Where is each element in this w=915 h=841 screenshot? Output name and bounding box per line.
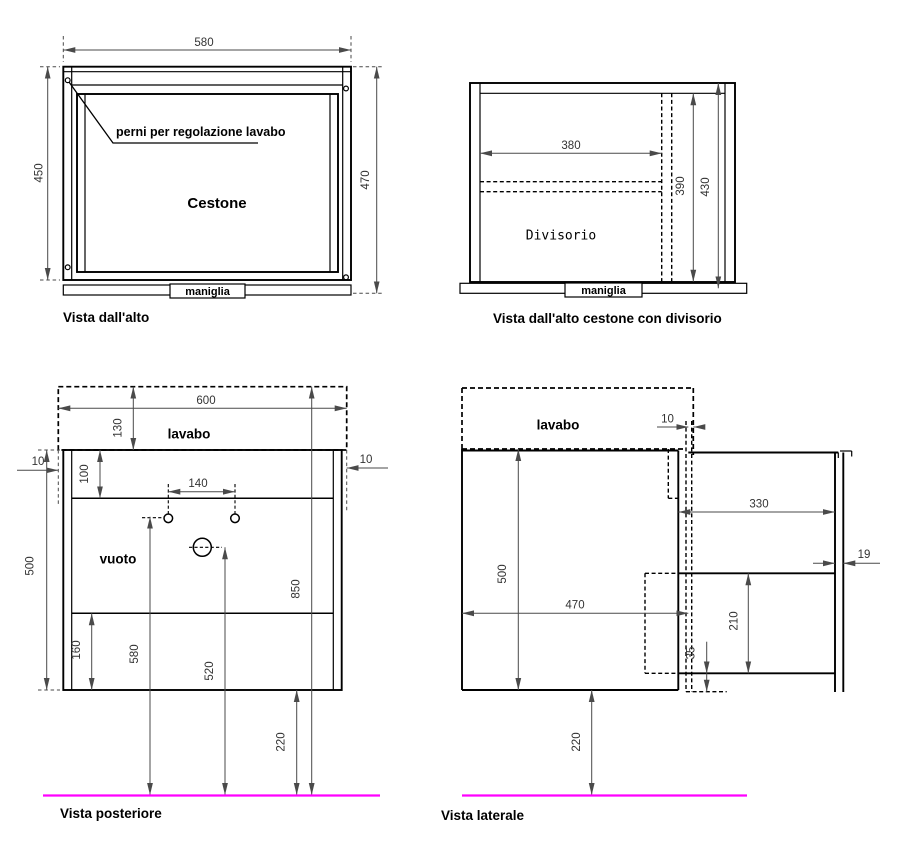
- dim-500-side: 500: [497, 564, 509, 583]
- view-top-divider: maniglia Divisorio 380 390 430 Vista dal…: [460, 83, 747, 326]
- pin-icon: [344, 86, 349, 91]
- pin-icon: [65, 265, 70, 270]
- caption-vista-posteriore: Vista posteriore: [60, 806, 162, 821]
- handle-label: maniglia: [581, 285, 627, 297]
- divider-hidden-lines: [480, 93, 672, 282]
- dimensions-rear-view: 600 130 10 10 100 140 500 850 160 580 52…: [17, 387, 388, 795]
- dim-390: 390: [675, 176, 687, 195]
- dim-470-depth: 470: [565, 600, 584, 612]
- caption-vista-dall-alto: Vista dall'alto: [63, 310, 149, 325]
- dim-210: 210: [729, 611, 741, 630]
- handle-box: maniglia: [565, 283, 642, 297]
- view-side: lavabo 10 330 19 500 470 210 35 220 Vist…: [441, 388, 880, 823]
- dim-10-right: 10: [360, 454, 373, 466]
- dim-35: 35: [686, 647, 698, 660]
- cabinet-outline-top-view: [63, 67, 351, 295]
- view-rear: lavabo vuoto 600 130 10 10 100 140 500 8…: [17, 387, 388, 821]
- adjustment-pins: [65, 78, 348, 280]
- dim-850: 850: [291, 579, 303, 598]
- pins-annotation: perni per regolazione lavabo: [116, 125, 286, 139]
- dim-380: 380: [561, 140, 580, 152]
- handle-label: maniglia: [185, 286, 231, 298]
- dim-160: 160: [71, 640, 83, 659]
- pin-icon: [344, 275, 349, 280]
- dim-500: 500: [25, 556, 37, 575]
- dim-140: 140: [188, 478, 207, 490]
- dim-470: 470: [360, 170, 372, 189]
- dim-580: 580: [194, 37, 213, 49]
- dim-19: 19: [858, 549, 871, 561]
- divisorio-label: Divisorio: [526, 229, 596, 244]
- dim-600: 600: [196, 395, 215, 407]
- lavabo-label-side: lavabo: [537, 418, 580, 433]
- faucet-holes: [142, 484, 239, 556]
- dim-220-side: 220: [571, 732, 583, 751]
- caption-vista-divisorio: Vista dall'alto cestone con divisorio: [493, 311, 722, 326]
- faucet-hole-icon: [231, 514, 240, 523]
- drawing-canvas: perni per regolazione lavabo Cestone man…: [0, 0, 915, 841]
- lavabo-label: lavabo: [168, 427, 211, 442]
- dim-220: 220: [276, 732, 288, 751]
- dim-10-left: 10: [32, 456, 45, 468]
- technical-drawing-page: perni per regolazione lavabo Cestone man…: [0, 0, 915, 841]
- vuoto-label: vuoto: [100, 552, 137, 567]
- view-top: perni per regolazione lavabo Cestone man…: [34, 36, 383, 325]
- dim-430: 430: [700, 177, 712, 196]
- dim-520: 520: [204, 661, 216, 680]
- dimensions-side-view: 10 330 19 500 470 210 35 220: [462, 414, 880, 796]
- dim-450: 450: [34, 163, 46, 182]
- dim-10-front: 10: [661, 414, 674, 426]
- dim-130: 130: [113, 418, 125, 437]
- dim-580-height: 580: [129, 644, 141, 663]
- cabinet-outline-side: [462, 449, 852, 692]
- caption-vista-laterale: Vista laterale: [441, 808, 525, 823]
- dim-330: 330: [749, 499, 768, 511]
- dimensions-divider-view: 380 390 430: [480, 83, 718, 288]
- cestone-label: Cestone: [187, 195, 246, 212]
- handle-box: maniglia: [170, 284, 245, 298]
- dim-100: 100: [79, 464, 91, 483]
- faucet-hole-icon: [164, 514, 173, 523]
